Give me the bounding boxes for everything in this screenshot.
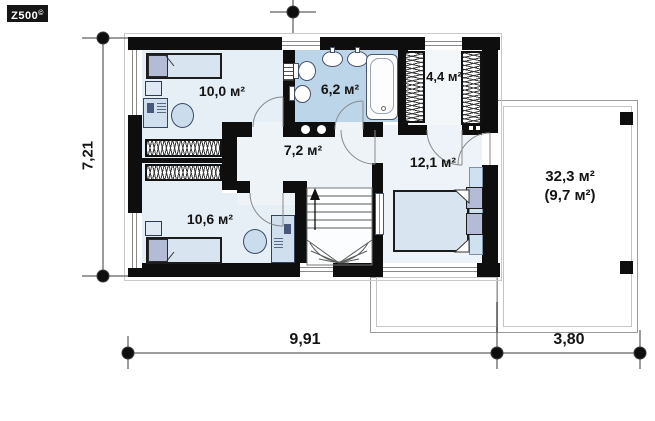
washer-drum-icon	[301, 125, 310, 134]
dimension-node	[97, 32, 109, 44]
terrace-area-secondary: (9,7 м²)	[505, 186, 635, 205]
room-area-label: 10,6 м²	[160, 211, 260, 227]
wall-segment	[482, 165, 498, 263]
window	[128, 213, 142, 268]
room-area-label: 6,2 м²	[288, 81, 392, 97]
monitor-icon	[147, 103, 154, 113]
vent-shaft	[283, 63, 294, 81]
washbasin	[322, 51, 343, 67]
door-opening	[482, 133, 498, 165]
wall-segment	[222, 122, 252, 137]
window	[282, 37, 320, 50]
duct-cell	[469, 126, 473, 130]
wall-segment	[142, 158, 222, 163]
wall-segment	[295, 193, 307, 268]
pillow	[148, 55, 168, 77]
wall-segment	[222, 137, 237, 190]
double-bed	[393, 190, 469, 252]
dimension-node	[491, 347, 503, 359]
office-chair	[171, 103, 194, 128]
washbasin	[347, 51, 368, 67]
terrace-area-main: 32,3 м²	[505, 167, 635, 186]
wall-segment	[283, 181, 307, 193]
wall-segment	[128, 37, 282, 50]
wall-segment	[363, 122, 383, 137]
nightstand	[466, 213, 483, 235]
logo-copyright-icon: ©	[38, 10, 44, 17]
office-chair	[243, 229, 267, 254]
terrace-window-door	[383, 263, 477, 277]
wardrobe-rail	[461, 51, 482, 125]
floor-stair-bay	[302, 188, 383, 268]
room-area-label: 7,2 м²	[253, 142, 353, 158]
monitor-icon	[284, 224, 291, 234]
window	[300, 263, 333, 277]
z500-logo: Z500©	[7, 5, 48, 22]
keyboard-icon	[274, 238, 283, 250]
wall-segment	[482, 50, 498, 133]
dimension-node	[634, 347, 646, 359]
wardrobe-rail	[145, 164, 222, 181]
nightstand	[466, 187, 483, 209]
duct-cell	[476, 126, 480, 130]
window	[128, 50, 142, 115]
wall-segment	[462, 37, 500, 50]
terrace-outline-bottom-inner	[376, 277, 497, 327]
pillow	[148, 239, 168, 262]
room-area-label: 10,0 м²	[162, 83, 282, 99]
headboard-panel	[469, 167, 483, 255]
washbasin-tap	[355, 47, 360, 53]
terrace-post	[620, 112, 633, 125]
wardrobe-rail	[145, 139, 222, 157]
dimension-label-width-terrace: 3,80	[519, 331, 619, 349]
dimension-node	[122, 347, 134, 359]
floor-plan: 10,0 м² 6,2 м² 4,4 м² 7,2 м² 12,1 м² 10,…	[0, 0, 655, 421]
wall-segment	[128, 263, 300, 277]
wall-segment	[128, 115, 142, 213]
wall-segment	[398, 125, 427, 135]
washer-drum-icon	[317, 125, 326, 134]
logo-brand: Z500	[11, 10, 38, 22]
keyboard-icon	[157, 103, 166, 115]
radiator	[375, 193, 384, 235]
wall-segment	[333, 263, 383, 277]
window	[425, 37, 462, 50]
wall-segment	[320, 37, 425, 50]
room-area-label: 4,4 м²	[398, 69, 490, 84]
wall-segment	[237, 181, 250, 193]
terrace-post	[620, 261, 633, 274]
terrace-area-label: 32,3 м² (9,7 м²)	[505, 167, 635, 205]
bathtub-drain	[381, 106, 386, 111]
room-area-label: 12,1 м²	[383, 154, 483, 170]
terrace-outline-right-inner	[503, 106, 632, 327]
toilet-bowl	[298, 61, 316, 81]
wardrobe-rail	[404, 51, 425, 123]
nightstand	[145, 81, 162, 96]
dimension-label-width-main: 9,91	[255, 331, 355, 349]
axis-marker	[287, 6, 299, 18]
dimension-node	[97, 270, 109, 282]
dimension-label-depth: 7,21	[80, 128, 97, 184]
washbasin-tap	[330, 47, 335, 53]
wall-segment	[477, 263, 500, 277]
